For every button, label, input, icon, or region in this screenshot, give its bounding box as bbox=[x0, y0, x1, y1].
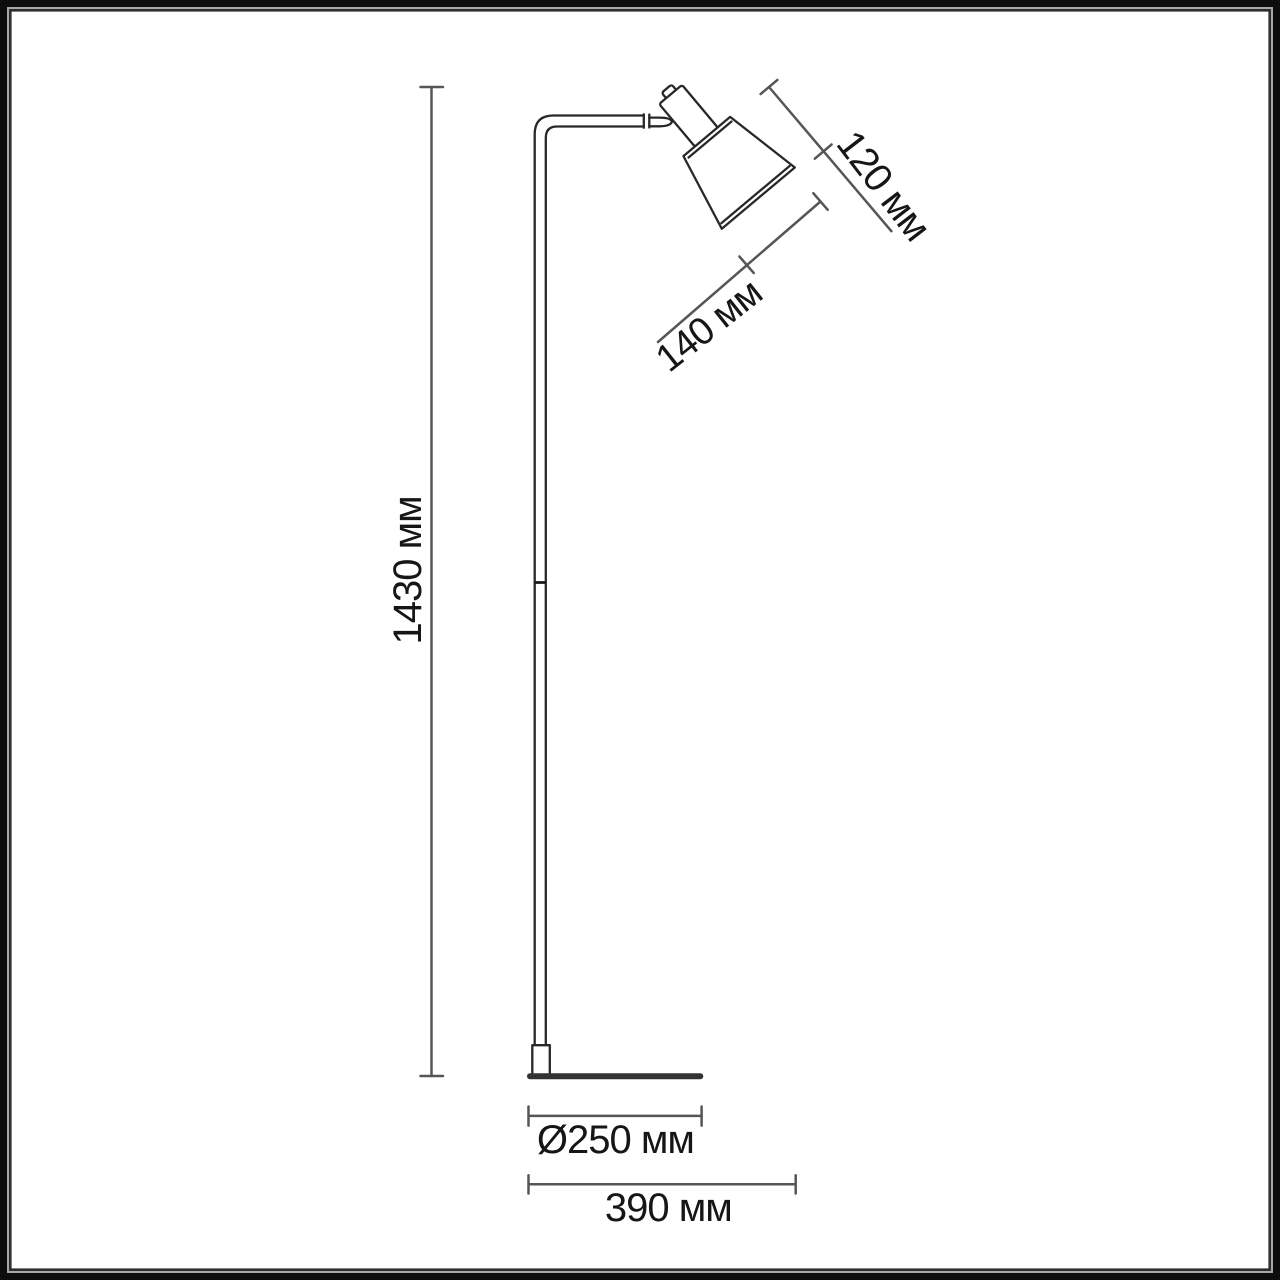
svg-text:1430 мм: 1430 мм bbox=[386, 496, 430, 644]
svg-text:390 мм: 390 мм bbox=[605, 1186, 732, 1230]
svg-text:Ø250 мм: Ø250 мм bbox=[537, 1118, 694, 1162]
